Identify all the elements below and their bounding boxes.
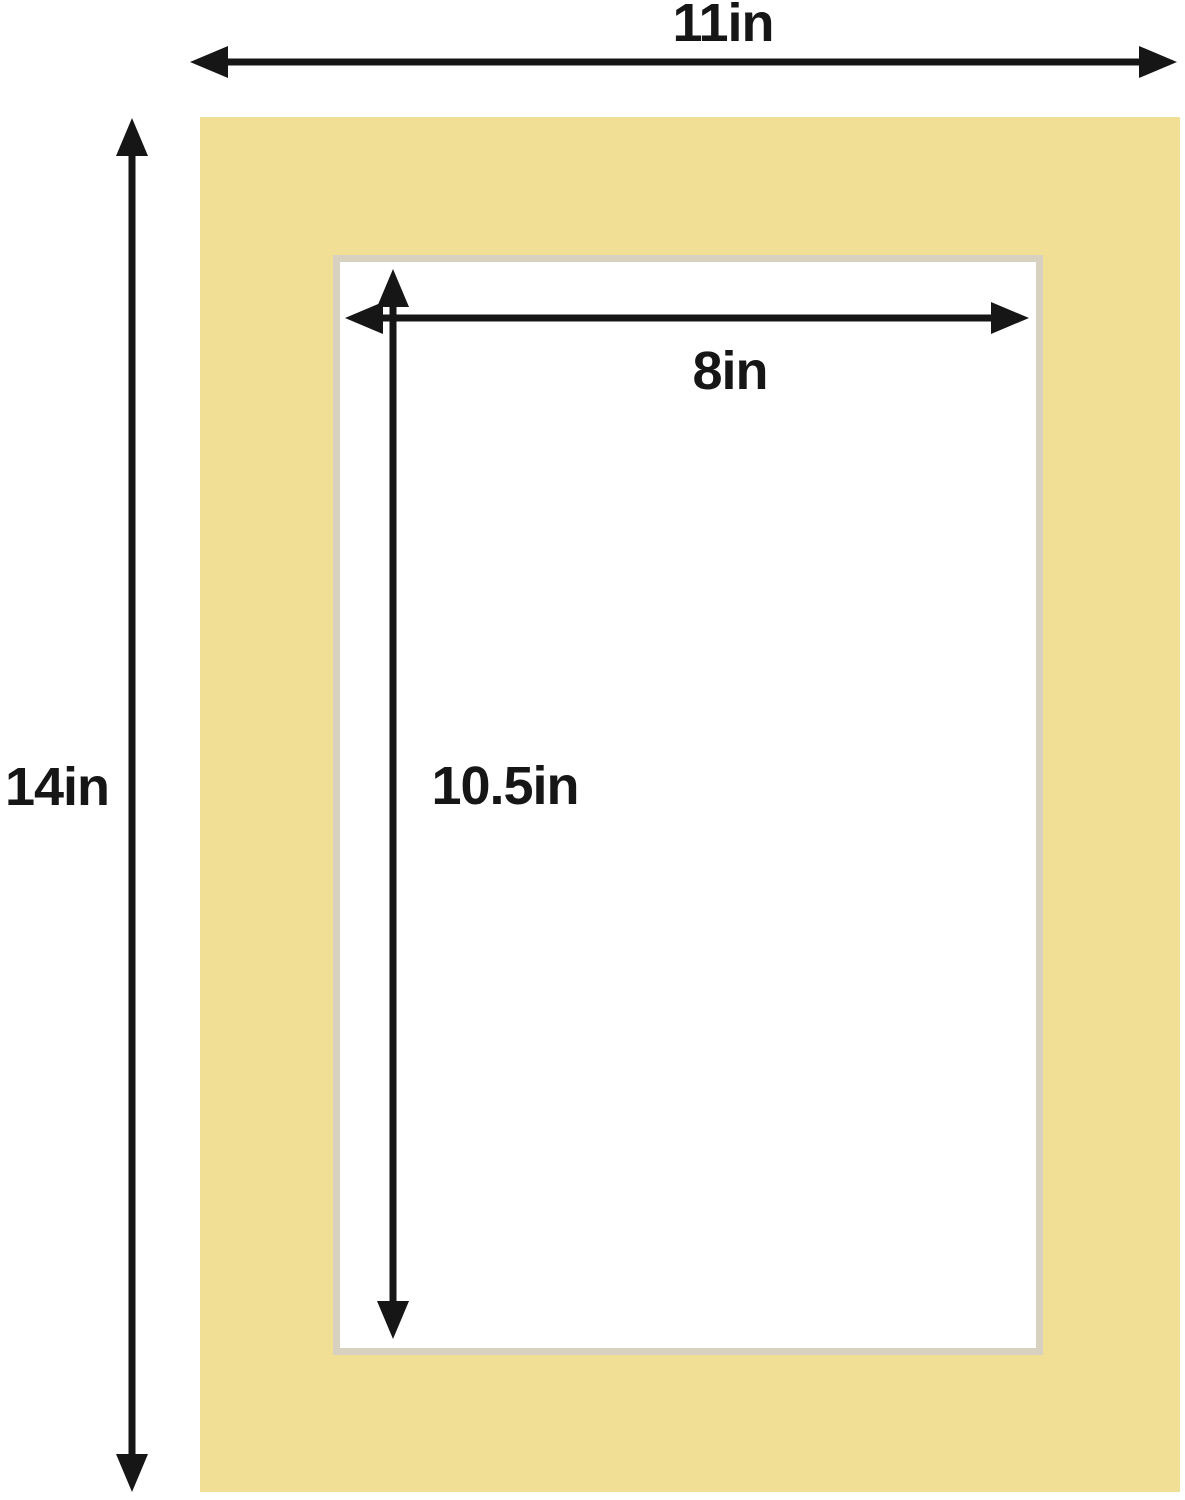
outer-height-label: 14in <box>0 759 117 815</box>
outer-width-label: 11in <box>637 0 809 51</box>
arrowhead-up-icon <box>377 269 409 307</box>
arrowhead-down-icon <box>116 1454 148 1492</box>
mat-dimension-diagram: 11in 14in 8in 10.5in <box>0 0 1185 1500</box>
outer-height-dimension-arrow <box>114 118 150 1492</box>
arrowhead-right-icon <box>1139 46 1177 78</box>
arrowhead-left-icon <box>190 46 228 78</box>
opening-height-label: 10.5in <box>415 758 595 814</box>
opening-width-dimension-arrow <box>345 300 1029 336</box>
opening-height-dimension-arrow <box>375 269 411 1339</box>
arrowhead-down-icon <box>377 1301 409 1339</box>
arrowhead-right-icon <box>991 302 1029 334</box>
arrowhead-up-icon <box>116 118 148 156</box>
opening-width-label: 8in <box>650 343 810 399</box>
